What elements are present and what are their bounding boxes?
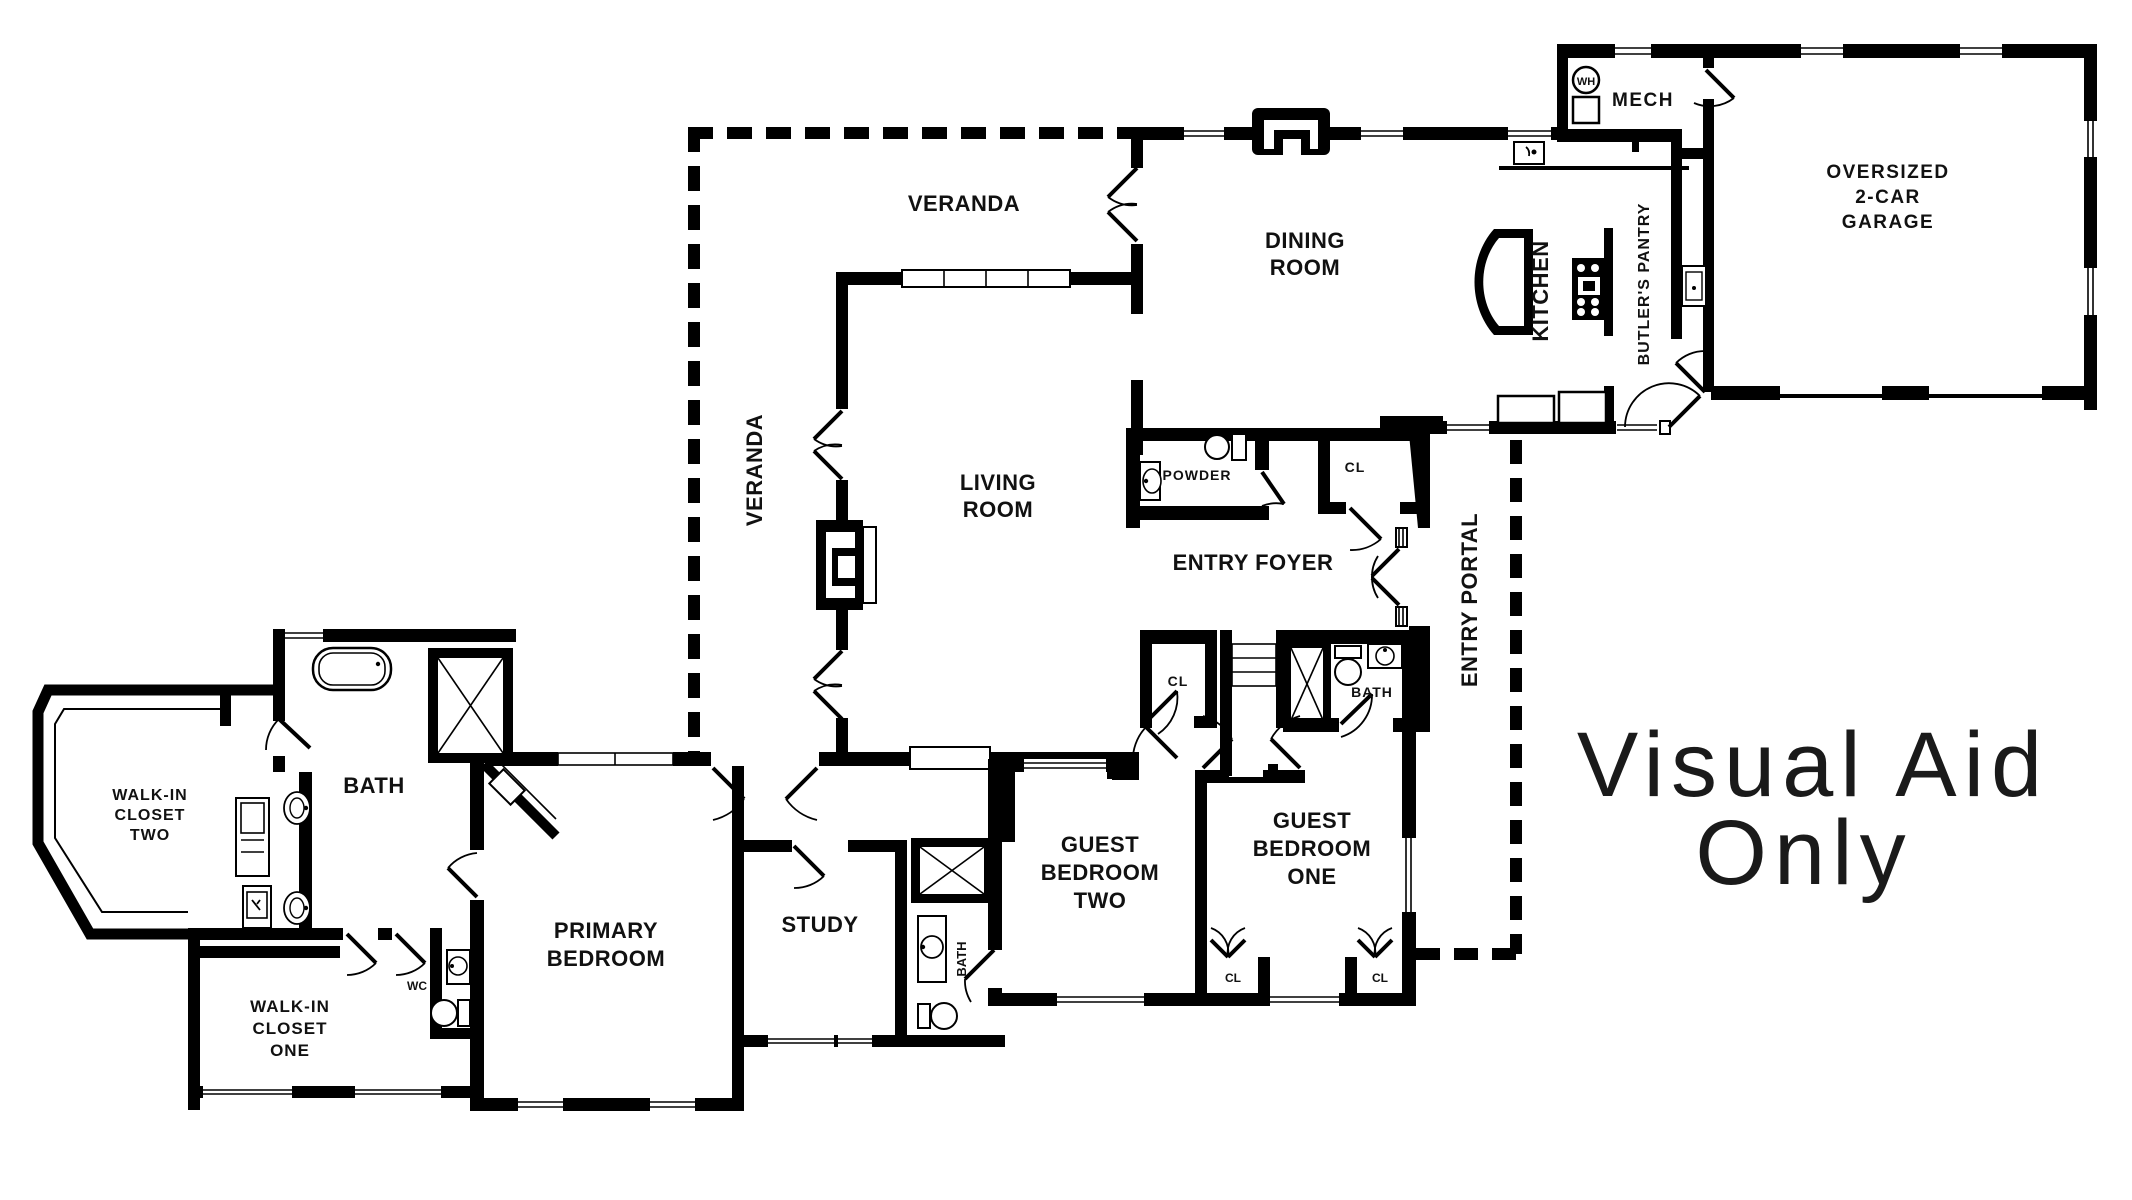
svg-text:WALK-IN: WALK-IN	[250, 997, 330, 1016]
svg-text:BATH: BATH	[1351, 684, 1393, 700]
svg-text:GUEST: GUEST	[1061, 832, 1139, 857]
svg-text:CL: CL	[1372, 971, 1388, 985]
svg-text:ONE: ONE	[270, 1041, 310, 1060]
svg-text:BATH: BATH	[343, 773, 404, 798]
svg-text:GUEST: GUEST	[1273, 808, 1351, 833]
svg-text:KITCHEN: KITCHEN	[1528, 240, 1553, 341]
svg-text:Only: Only	[1695, 802, 1912, 904]
svg-text:2-CAR: 2-CAR	[1855, 187, 1921, 208]
svg-text:PRIMARY: PRIMARY	[554, 918, 658, 943]
svg-text:LIVING: LIVING	[960, 470, 1036, 495]
svg-text:BEDROOM: BEDROOM	[547, 946, 665, 971]
svg-text:STUDY: STUDY	[781, 912, 858, 937]
svg-text:BEDROOM: BEDROOM	[1041, 860, 1159, 885]
svg-text:TWO: TWO	[130, 827, 170, 844]
svg-text:MECH: MECH	[1612, 90, 1674, 111]
svg-text:Visual Aid: Visual Aid	[1577, 714, 2049, 816]
svg-text:BATH: BATH	[954, 941, 969, 976]
svg-text:DINING: DINING	[1265, 228, 1345, 253]
svg-text:ROOM: ROOM	[1270, 255, 1340, 280]
svg-text:CLOSET: CLOSET	[253, 1019, 328, 1038]
svg-text:TWO: TWO	[1074, 888, 1127, 913]
svg-text:POWDER: POWDER	[1163, 467, 1232, 483]
svg-text:VERANDA: VERANDA	[742, 414, 767, 526]
svg-text:CL: CL	[1345, 459, 1366, 475]
svg-text:ROOM: ROOM	[963, 497, 1033, 522]
svg-text:ENTRY FOYER: ENTRY FOYER	[1173, 550, 1334, 575]
svg-text:ENTRY PORTAL: ENTRY PORTAL	[1457, 513, 1482, 687]
svg-text:BUTLER'S PANTRY: BUTLER'S PANTRY	[1636, 203, 1653, 366]
svg-text:ONE: ONE	[1287, 864, 1336, 889]
svg-text:BEDROOM: BEDROOM	[1253, 836, 1371, 861]
svg-text:WALK-IN: WALK-IN	[112, 787, 187, 804]
svg-text:WC: WC	[407, 979, 427, 993]
svg-text:WH: WH	[1577, 76, 1595, 88]
svg-text:CL: CL	[1225, 971, 1241, 985]
svg-text:CLOSET: CLOSET	[115, 807, 186, 824]
svg-text:GARAGE: GARAGE	[1842, 212, 1934, 233]
svg-text:OVERSIZED: OVERSIZED	[1826, 162, 1949, 183]
svg-text:CL: CL	[1168, 673, 1189, 689]
svg-text:VERANDA: VERANDA	[908, 191, 1020, 216]
